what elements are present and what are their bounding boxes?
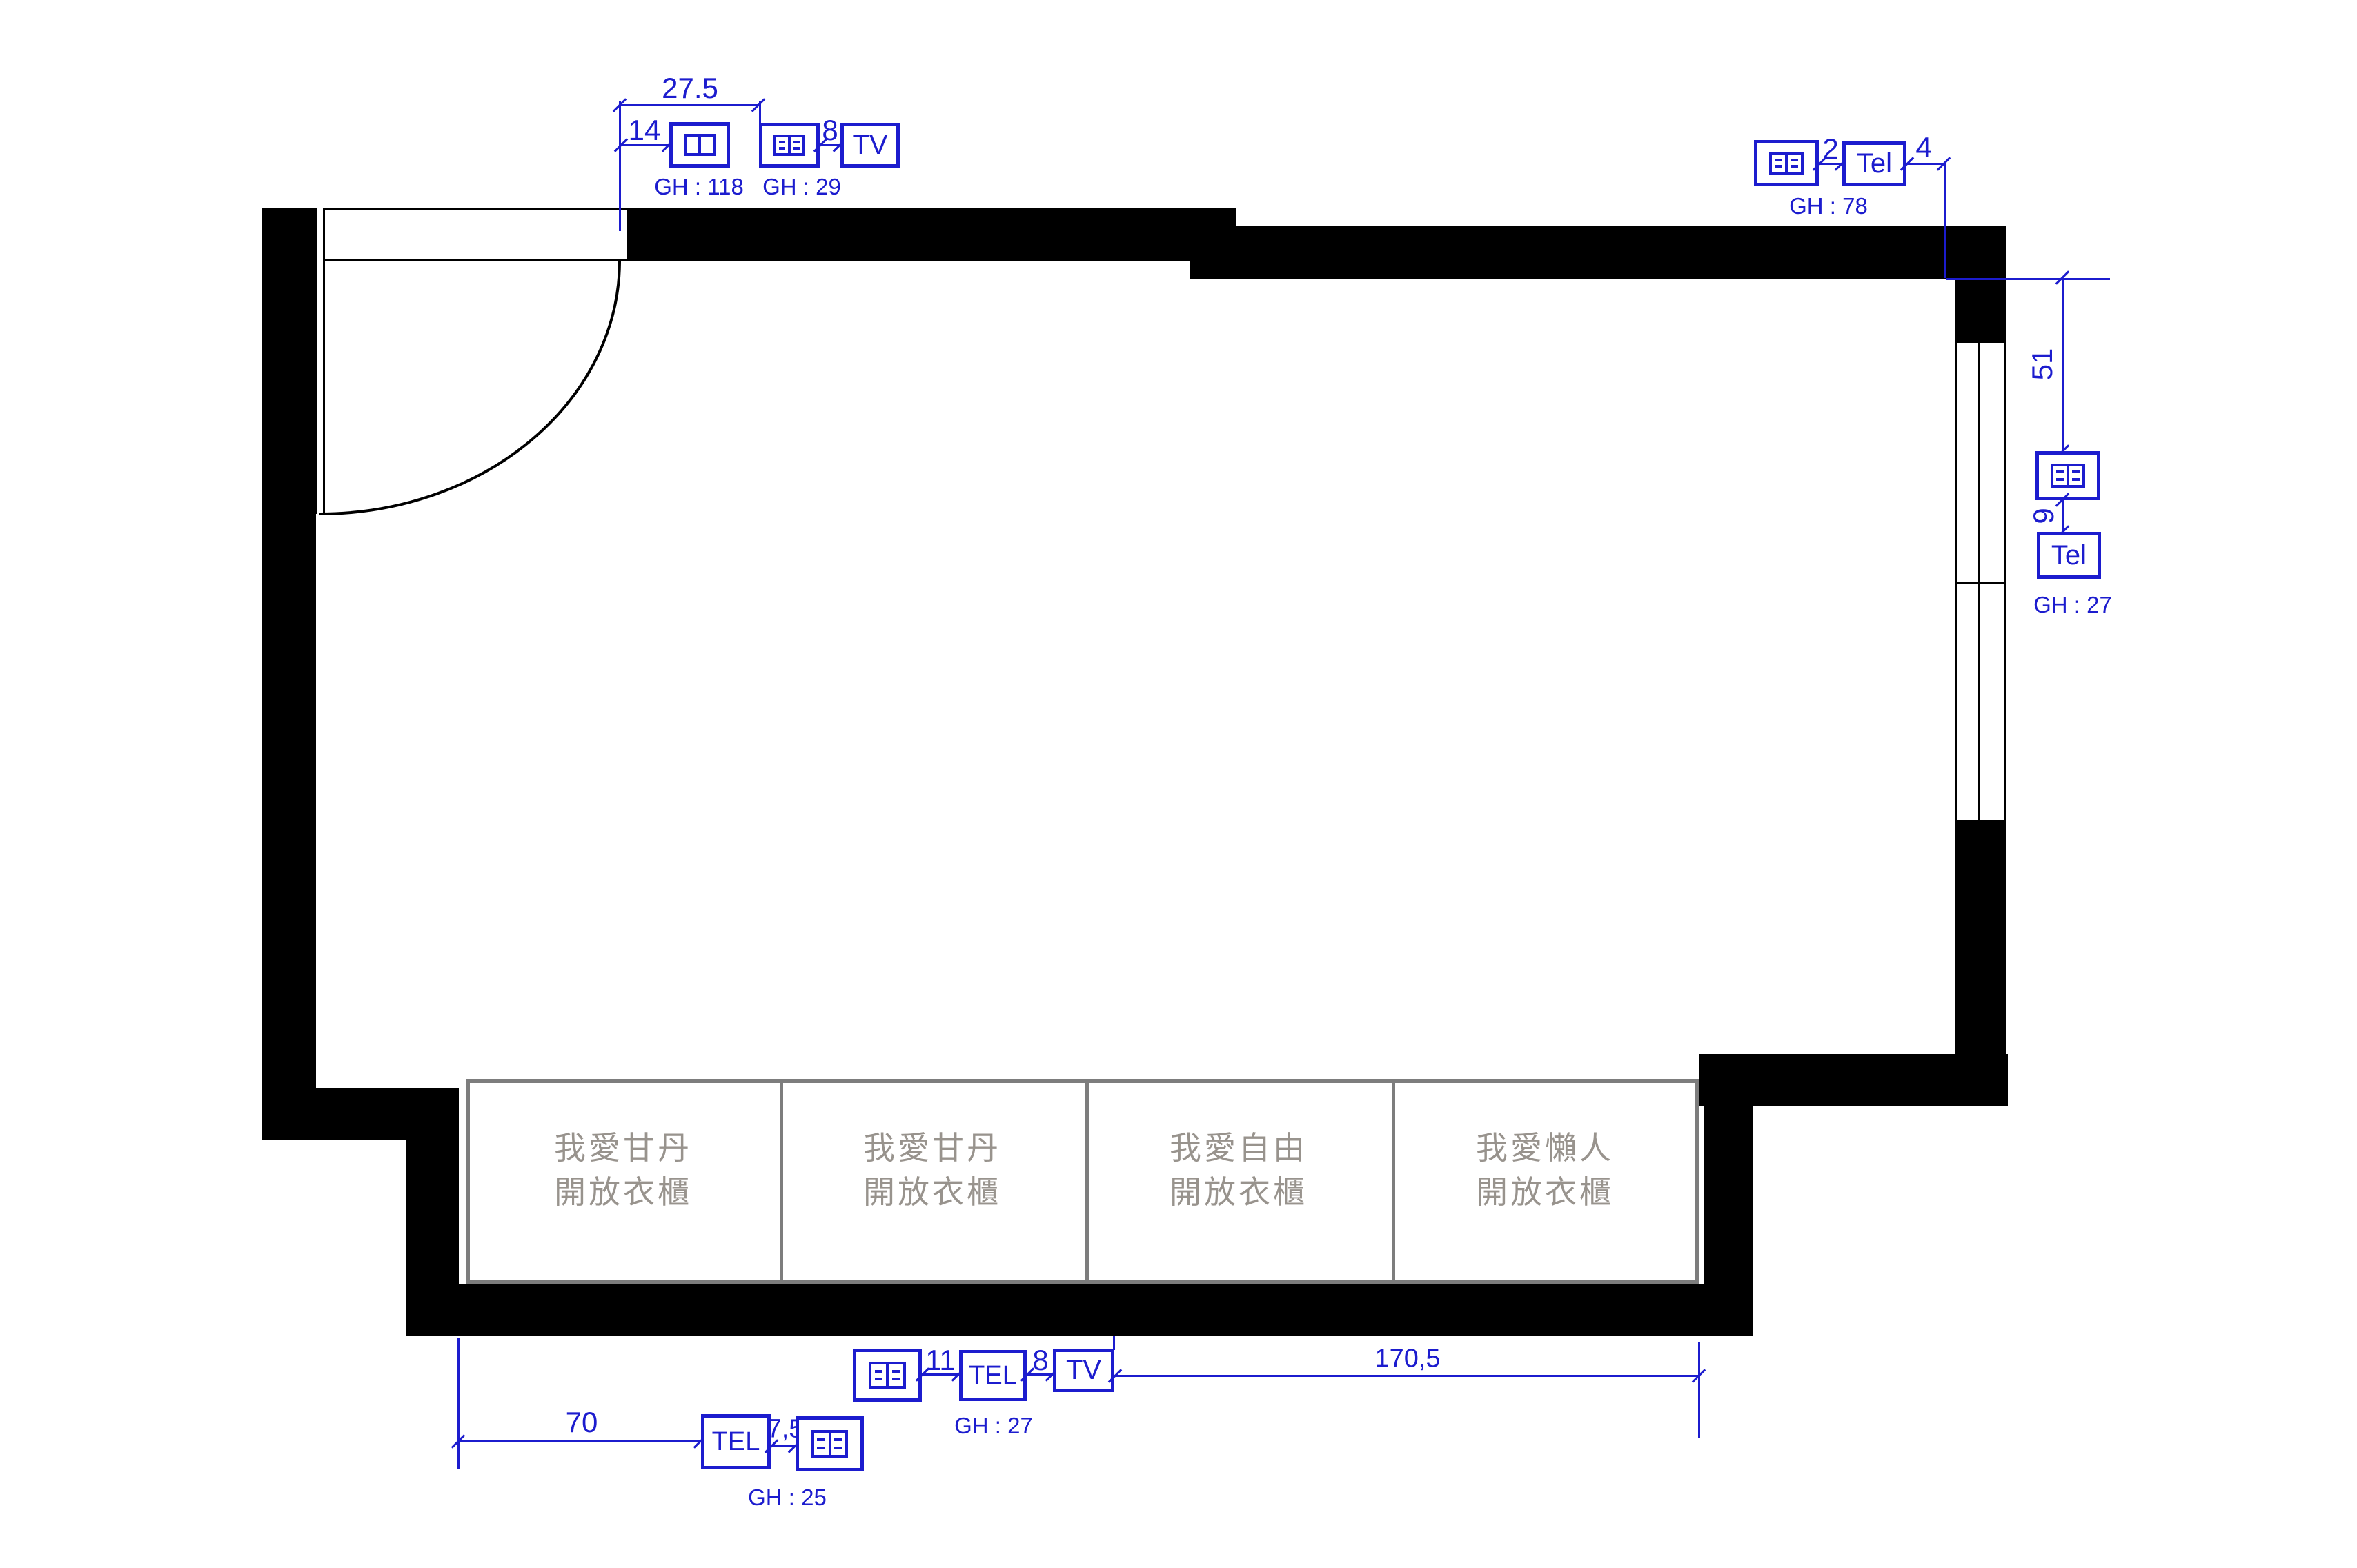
extension-line	[1113, 1336, 1115, 1350]
outlet-socket	[788, 137, 802, 154]
outlet-socket	[1772, 155, 1785, 172]
outlet-socket-pair	[869, 1362, 906, 1389]
wardrobe-label-2: 我愛甘丹 開放衣櫃	[863, 1126, 1001, 1214]
wall-top-left	[627, 208, 1236, 261]
outlet-socket	[1785, 155, 1801, 172]
outlet-socket-pair	[811, 1430, 848, 1458]
dimension-line-7-5	[771, 1445, 796, 1447]
dimension-line-170-5	[1114, 1375, 1699, 1377]
window-sill-divider	[1955, 582, 2006, 584]
wall-left	[262, 208, 316, 1088]
mount-height-label: GH : 118	[654, 174, 744, 200]
tv-jack-box: TV	[1053, 1349, 1114, 1392]
power-outlet-icon	[669, 122, 730, 168]
tel-jack-label: Tel	[1857, 148, 1892, 179]
dimension-text-2: 2	[1822, 132, 1838, 166]
dimension-text-11: 11	[925, 1344, 956, 1377]
wardrobe-divider-1	[780, 1083, 783, 1280]
outlet-socket	[871, 1364, 886, 1386]
mount-height-label: GH : 27	[954, 1413, 1033, 1439]
wall-right-step-column	[1704, 1106, 1753, 1336]
outlet-socket	[814, 1433, 829, 1456]
door-opening-outer-line	[316, 208, 627, 210]
dimension-line-11	[922, 1373, 959, 1376]
outlet-socket-pair	[2051, 464, 2085, 488]
dimension-line-4	[1906, 163, 1944, 165]
dimension-text-70: 70	[566, 1406, 598, 1439]
door-leaf	[315, 208, 325, 514]
tel-jack-label: TEL	[969, 1361, 1017, 1391]
dimension-text-9: 9	[2027, 508, 2060, 524]
mount-height-label: GH : 25	[748, 1485, 827, 1511]
wall-right-lower	[1955, 820, 2006, 1106]
outlet-socket-pair	[773, 135, 806, 157]
wardrobe-label-1: 我愛甘丹 開放衣櫃	[554, 1126, 692, 1214]
dimension-text-4: 4	[1915, 131, 1931, 164]
outlet-socket	[829, 1433, 846, 1456]
tel-jack-label: TEL	[712, 1427, 760, 1457]
tel-jack-box: TEL	[959, 1350, 1027, 1401]
mount-height-label: GH : 27	[2033, 592, 2112, 618]
extension-line	[1698, 1342, 1700, 1438]
mount-height-label: GH : 78	[1789, 193, 1868, 219]
dimension-line-51	[2062, 278, 2064, 451]
wardrobe-label-2-line1: 我愛甘丹	[863, 1126, 1001, 1170]
outlet-socket	[698, 137, 713, 153]
dimension-text-27-5: 27.5	[662, 72, 718, 105]
mount-height-label: GH : 29	[762, 174, 841, 200]
duplex-outlet-icon	[853, 1349, 922, 1402]
wall-top-right	[1190, 226, 2006, 279]
dimension-text-8: 8	[822, 114, 838, 147]
wardrobe-label-1-line2: 開放衣櫃	[554, 1170, 692, 1214]
tv-jack-label: TV	[852, 130, 887, 161]
wall-left-stub	[262, 1088, 459, 1140]
wall-bottom	[406, 1284, 1753, 1336]
wall-right-upper	[1955, 226, 2006, 343]
wardrobe-label-3-line2: 開放衣櫃	[1170, 1170, 1308, 1214]
extension-line	[619, 101, 621, 231]
extension-line	[759, 101, 761, 124]
wardrobe-label-4-line2: 開放衣櫃	[1476, 1170, 1614, 1214]
tel-jack-label: Tel	[2051, 540, 2087, 571]
outlet-socket	[2053, 466, 2067, 485]
extension-line	[1946, 278, 2110, 280]
tel-jack-box: TEL	[701, 1414, 771, 1469]
dimension-line-9	[2062, 500, 2064, 532]
floor-plan-canvas: 我愛甘丹 開放衣櫃 我愛甘丹 開放衣櫃 我愛自由 開放衣櫃 我愛懶人 開放衣櫃 …	[0, 0, 2357, 1568]
duplex-outlet-icon	[759, 123, 820, 168]
dimension-line-70	[457, 1440, 701, 1442]
wardrobe-divider-3	[1392, 1083, 1395, 1280]
wardrobe-divider-2	[1085, 1083, 1089, 1280]
duplex-outlet-icon	[796, 1416, 864, 1471]
tel-jack-box: Tel	[1842, 141, 1906, 186]
wardrobe-label-3: 我愛自由 開放衣櫃	[1170, 1126, 1308, 1214]
outlet-socket	[687, 137, 698, 153]
wardrobe-label-2-line2: 開放衣櫃	[863, 1170, 1001, 1214]
window	[1955, 343, 2006, 820]
door-opening-inner-line	[325, 259, 627, 261]
tel-jack-box: Tel	[2037, 532, 2101, 579]
wardrobe-label-1-line1: 我愛甘丹	[554, 1126, 692, 1170]
dimension-text-8: 8	[1032, 1344, 1048, 1377]
wardrobe-cabinet-row: 我愛甘丹 開放衣櫃 我愛甘丹 開放衣櫃 我愛自由 開放衣櫃 我愛懶人 開放衣櫃	[466, 1079, 1699, 1284]
tv-jack-box: TV	[840, 123, 900, 168]
duplex-outlet-icon	[1754, 140, 1819, 186]
outlet-socket	[886, 1364, 903, 1386]
dimension-line-2	[1819, 163, 1842, 165]
dimension-text-14: 14	[629, 114, 661, 147]
dimension-text-51: 51	[2026, 348, 2059, 381]
outlet-socket-pair	[684, 134, 716, 156]
dimension-line-8	[1027, 1373, 1053, 1376]
wardrobe-label-4-line1: 我愛懶人	[1476, 1126, 1614, 1170]
outlet-socket-pair	[1769, 152, 1804, 175]
extension-line	[457, 1338, 460, 1469]
outlet-socket	[776, 137, 788, 154]
tv-jack-label: TV	[1066, 1355, 1101, 1386]
extension-line	[1944, 163, 1946, 278]
wardrobe-label-3-line1: 我愛自由	[1170, 1126, 1308, 1170]
wardrobe-label-4: 我愛懶人 開放衣櫃	[1476, 1126, 1614, 1214]
outlet-socket	[2067, 466, 2082, 485]
dimension-text-170-5: 170,5	[1374, 1344, 1440, 1374]
